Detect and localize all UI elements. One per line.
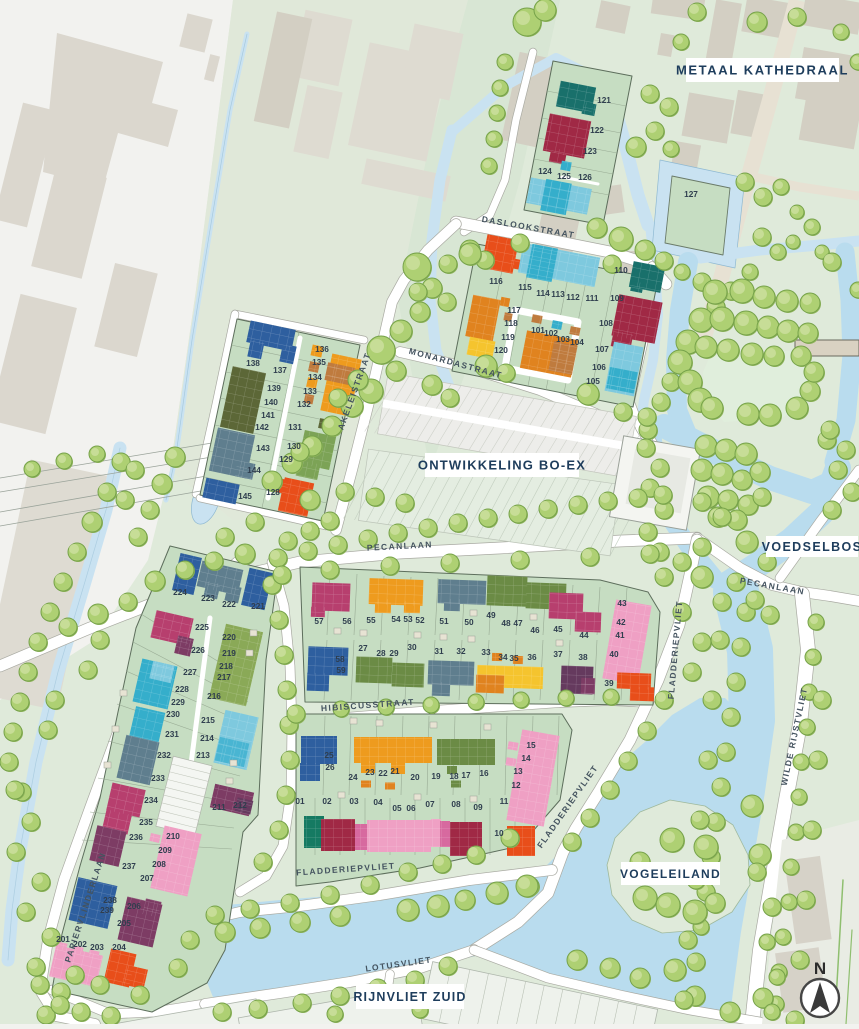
- svg-text:226: 226: [191, 645, 205, 655]
- svg-text:13: 13: [513, 766, 523, 776]
- svg-text:116: 116: [489, 276, 503, 286]
- svg-text:131: 131: [288, 422, 302, 432]
- svg-text:123: 123: [583, 146, 597, 156]
- svg-text:109: 109: [610, 293, 624, 303]
- svg-text:26: 26: [325, 762, 335, 772]
- svg-text:45: 45: [553, 624, 563, 634]
- svg-text:111: 111: [586, 293, 599, 303]
- svg-text:55: 55: [366, 615, 376, 625]
- svg-text:218: 218: [219, 661, 233, 671]
- svg-text:47: 47: [513, 618, 523, 628]
- svg-text:01: 01: [295, 796, 305, 806]
- svg-text:20: 20: [410, 772, 420, 782]
- svg-text:239: 239: [100, 905, 114, 915]
- svg-text:232: 232: [157, 750, 171, 760]
- svg-text:136: 136: [315, 344, 329, 354]
- svg-text:214: 214: [200, 733, 214, 743]
- svg-text:206: 206: [127, 901, 141, 911]
- svg-text:12: 12: [511, 780, 521, 790]
- svg-text:128: 128: [266, 487, 280, 497]
- svg-text:223: 223: [201, 593, 215, 603]
- svg-text:119: 119: [501, 332, 515, 342]
- svg-text:35: 35: [509, 653, 519, 663]
- svg-text:18: 18: [449, 771, 459, 781]
- svg-text:42: 42: [616, 617, 626, 627]
- svg-text:48: 48: [501, 618, 511, 628]
- svg-text:34: 34: [498, 652, 508, 662]
- svg-text:211: 211: [212, 802, 226, 812]
- svg-text:135: 135: [312, 357, 326, 367]
- svg-text:129: 129: [279, 454, 293, 464]
- svg-text:16: 16: [479, 768, 489, 778]
- svg-text:31: 31: [434, 646, 444, 656]
- svg-text:103: 103: [556, 334, 570, 344]
- svg-text:52: 52: [415, 615, 425, 625]
- svg-text:59: 59: [336, 665, 346, 675]
- svg-text:46: 46: [530, 625, 540, 635]
- svg-text:115: 115: [518, 282, 532, 292]
- svg-text:234: 234: [144, 795, 158, 805]
- svg-text:113: 113: [551, 289, 565, 299]
- svg-text:107: 107: [595, 344, 609, 354]
- svg-text:230: 230: [166, 709, 180, 719]
- svg-text:143: 143: [256, 443, 270, 453]
- svg-text:50: 50: [464, 617, 474, 627]
- svg-text:56: 56: [342, 616, 352, 626]
- svg-text:201: 201: [56, 934, 70, 944]
- svg-text:140: 140: [264, 397, 278, 407]
- svg-text:110: 110: [614, 265, 628, 275]
- svg-text:36: 36: [527, 652, 537, 662]
- svg-text:57: 57: [314, 616, 324, 626]
- svg-text:28: 28: [376, 648, 386, 658]
- svg-text:233: 233: [151, 773, 165, 783]
- svg-text:120: 120: [494, 345, 508, 355]
- svg-text:25: 25: [324, 750, 334, 760]
- svg-text:03: 03: [349, 796, 359, 806]
- svg-text:202: 202: [73, 939, 87, 949]
- svg-text:144: 144: [247, 465, 261, 475]
- svg-text:224: 224: [173, 587, 187, 597]
- svg-text:10: 10: [494, 828, 504, 838]
- svg-text:207: 207: [140, 873, 154, 883]
- svg-text:30: 30: [407, 642, 417, 652]
- svg-text:VOGELEILAND: VOGELEILAND: [620, 867, 721, 881]
- svg-text:133: 133: [303, 386, 317, 396]
- svg-text:06: 06: [406, 803, 416, 813]
- svg-text:41: 41: [615, 630, 625, 640]
- svg-text:19: 19: [431, 771, 441, 781]
- svg-text:213: 213: [196, 750, 210, 760]
- svg-text:RIJNVLIET ZUID: RIJNVLIET ZUID: [353, 990, 466, 1004]
- svg-text:125: 125: [557, 171, 571, 181]
- svg-text:VOEDSELBOS: VOEDSELBOS: [762, 540, 859, 554]
- svg-text:05: 05: [392, 803, 402, 813]
- svg-text:23: 23: [365, 767, 375, 777]
- svg-text:204: 204: [112, 942, 126, 952]
- svg-text:117: 117: [507, 305, 521, 315]
- svg-text:228: 228: [175, 684, 189, 694]
- svg-text:132: 132: [297, 399, 311, 409]
- svg-text:208: 208: [152, 859, 166, 869]
- svg-text:141: 141: [261, 410, 275, 420]
- svg-text:17: 17: [461, 770, 471, 780]
- svg-text:145: 145: [238, 491, 252, 501]
- svg-text:216: 216: [207, 691, 221, 701]
- svg-text:127: 127: [684, 189, 698, 199]
- svg-text:221: 221: [251, 601, 265, 611]
- svg-text:32: 32: [456, 646, 466, 656]
- svg-text:203: 203: [90, 942, 104, 952]
- svg-text:54: 54: [391, 614, 401, 624]
- svg-text:210: 210: [166, 831, 180, 841]
- svg-text:METAAL KATHEDRAAL: METAAL KATHEDRAAL: [676, 63, 849, 78]
- svg-text:21: 21: [390, 766, 400, 776]
- svg-text:231: 231: [165, 729, 179, 739]
- svg-text:11: 11: [500, 796, 509, 806]
- svg-text:220: 220: [222, 632, 236, 642]
- svg-text:37: 37: [553, 649, 563, 659]
- svg-text:44: 44: [579, 630, 589, 640]
- svg-text:237: 237: [122, 861, 136, 871]
- svg-text:58: 58: [335, 654, 345, 664]
- svg-text:138: 138: [246, 358, 260, 368]
- svg-text:40: 40: [609, 649, 619, 659]
- svg-text:225: 225: [195, 622, 209, 632]
- svg-text:235: 235: [139, 817, 153, 827]
- svg-text:04: 04: [373, 797, 383, 807]
- svg-text:43: 43: [617, 598, 627, 608]
- svg-text:53: 53: [403, 614, 413, 624]
- svg-text:134: 134: [308, 372, 322, 382]
- svg-text:27: 27: [358, 643, 368, 653]
- svg-text:126: 126: [578, 172, 592, 182]
- svg-text:08: 08: [451, 799, 461, 809]
- svg-text:29: 29: [389, 648, 399, 658]
- svg-text:24: 24: [348, 772, 358, 782]
- svg-text:229: 229: [171, 697, 185, 707]
- svg-text:51: 51: [439, 616, 449, 626]
- svg-text:139: 139: [267, 383, 281, 393]
- svg-text:09: 09: [473, 802, 483, 812]
- svg-text:118: 118: [504, 318, 518, 328]
- svg-text:205: 205: [117, 918, 131, 928]
- svg-text:114: 114: [536, 288, 550, 298]
- svg-text:49: 49: [486, 610, 496, 620]
- svg-text:22: 22: [378, 768, 388, 778]
- svg-text:209: 209: [158, 845, 172, 855]
- svg-text:122: 122: [590, 125, 604, 135]
- svg-text:215: 215: [201, 715, 215, 725]
- svg-text:236: 236: [129, 832, 143, 842]
- svg-text:121: 121: [597, 95, 611, 105]
- svg-text:105: 105: [586, 376, 600, 386]
- svg-text:124: 124: [538, 166, 552, 176]
- svg-text:104: 104: [570, 337, 584, 347]
- svg-text:38: 38: [578, 652, 588, 662]
- svg-text:02: 02: [322, 796, 332, 806]
- svg-text:217: 217: [217, 672, 231, 682]
- svg-text:137: 137: [273, 365, 287, 375]
- svg-text:227: 227: [183, 667, 197, 677]
- svg-text:N: N: [814, 959, 826, 978]
- svg-text:219: 219: [222, 648, 236, 658]
- svg-text:222: 222: [222, 599, 236, 609]
- svg-text:39: 39: [604, 678, 614, 688]
- svg-text:130: 130: [287, 441, 301, 451]
- svg-text:142: 142: [255, 422, 269, 432]
- svg-text:108: 108: [599, 318, 613, 328]
- svg-text:112: 112: [566, 292, 580, 302]
- svg-text:14: 14: [521, 753, 531, 763]
- svg-text:212: 212: [233, 800, 247, 810]
- svg-text:106: 106: [592, 362, 606, 372]
- svg-text:ONTWIKKELING BO-EX: ONTWIKKELING BO-EX: [418, 458, 586, 473]
- svg-text:07: 07: [425, 799, 435, 809]
- svg-text:238: 238: [103, 895, 117, 905]
- svg-text:33: 33: [481, 647, 491, 657]
- svg-text:15: 15: [526, 740, 536, 750]
